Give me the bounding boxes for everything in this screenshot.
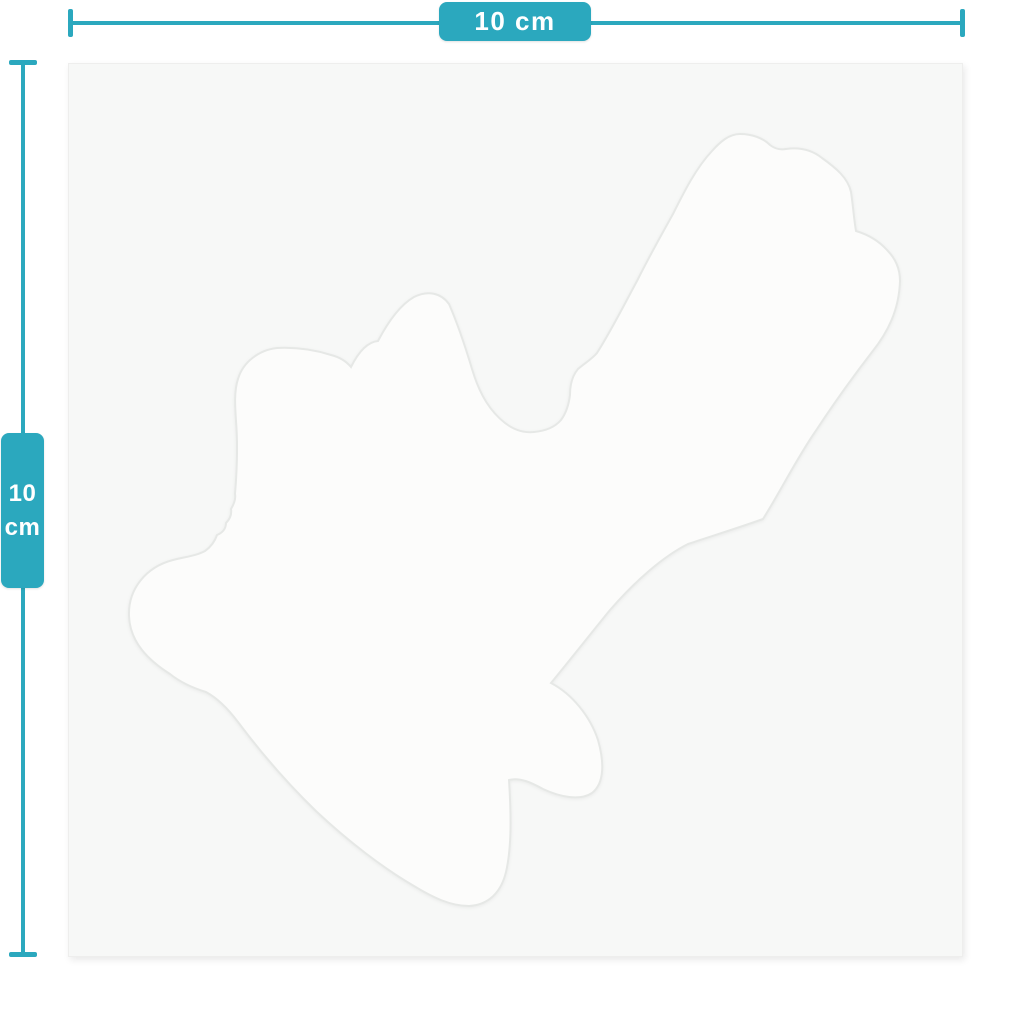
width-dimension-label: 10 cm <box>474 6 555 37</box>
width-ruler-left-end-tick <box>68 9 73 37</box>
height-dimension-badge: 10 cm <box>1 433 44 588</box>
height-dimension-unit: cm <box>5 511 41 545</box>
width-ruler-right-end-tick <box>960 9 965 37</box>
height-dimension-value: 10 <box>9 477 37 511</box>
width-dimension-badge: 10 cm <box>439 2 591 41</box>
sticker-sheet-panel <box>68 63 963 957</box>
height-ruler-bottom-end-tick <box>9 952 37 957</box>
product-dimension-image: 10 cm 10 cm <box>0 0 1024 1024</box>
height-ruler-top-end-tick <box>9 60 37 65</box>
